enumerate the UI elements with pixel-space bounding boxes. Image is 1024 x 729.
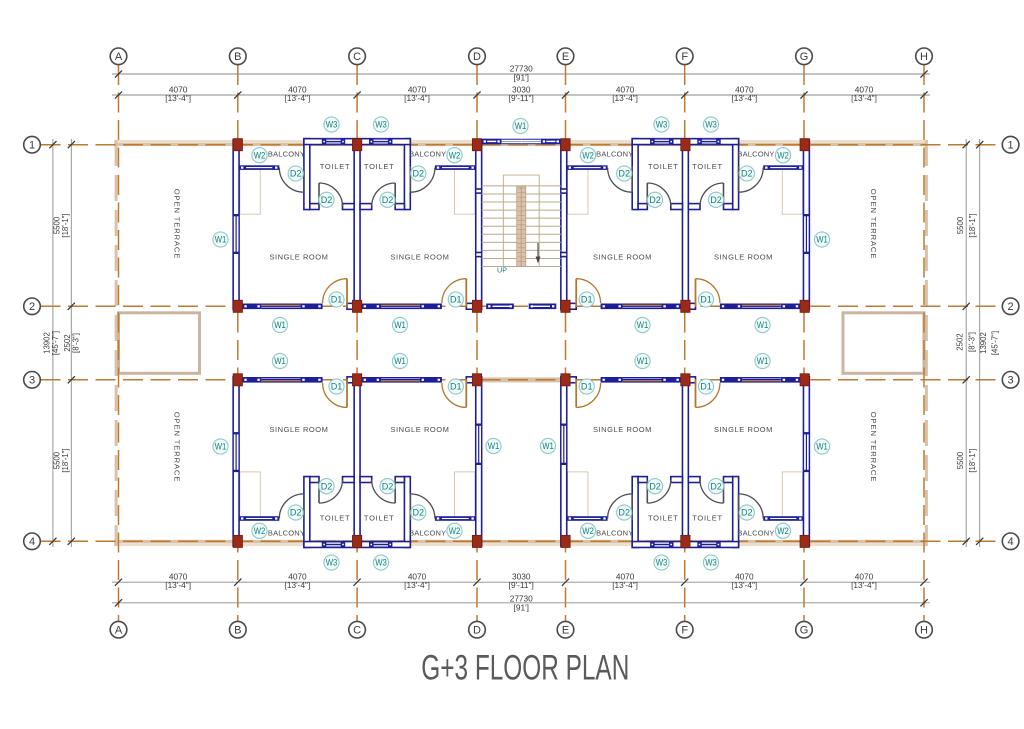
svg-text:D2: D2	[290, 508, 302, 518]
svg-text:[45'-7"]: [45'-7"]	[51, 331, 60, 355]
svg-text:TOILET: TOILET	[320, 514, 351, 523]
svg-text:D1: D1	[331, 295, 343, 305]
svg-text:W1: W1	[757, 320, 769, 330]
svg-text:3: 3	[29, 375, 35, 387]
svg-text:[45'-7"]: [45'-7"]	[991, 331, 1000, 355]
svg-text:D2: D2	[741, 169, 753, 179]
svg-text:W2: W2	[777, 150, 789, 160]
svg-text:H: H	[920, 625, 928, 637]
svg-text:D2: D2	[321, 481, 333, 491]
svg-text:TOILET: TOILET	[320, 162, 351, 171]
svg-text:D1: D1	[700, 382, 712, 392]
svg-text:SINGLE ROOM: SINGLE ROOM	[593, 425, 652, 434]
svg-text:1: 1	[1008, 140, 1014, 152]
svg-text:[13'-4"]: [13'-4"]	[404, 93, 430, 103]
svg-text:D2: D2	[741, 508, 753, 518]
svg-text:W2: W2	[449, 526, 461, 536]
svg-text:2: 2	[29, 301, 35, 313]
svg-text:SINGLE ROOM: SINGLE ROOM	[714, 425, 773, 434]
svg-text:4: 4	[1008, 536, 1014, 548]
svg-text:[18'-1"]: [18'-1"]	[61, 213, 70, 237]
svg-text:A: A	[115, 51, 123, 63]
svg-text:[13'-4"]: [13'-4"]	[165, 93, 191, 103]
svg-text:W1: W1	[274, 356, 286, 366]
svg-text:D1: D1	[581, 295, 593, 305]
svg-text:D2: D2	[649, 195, 661, 205]
svg-text:SINGLE ROOM: SINGLE ROOM	[270, 253, 329, 262]
svg-text:G: G	[800, 51, 809, 63]
svg-text:W1: W1	[215, 235, 227, 245]
svg-text:D2: D2	[382, 481, 394, 491]
svg-text:4: 4	[29, 536, 35, 548]
svg-text:G: G	[800, 625, 809, 637]
svg-text:SINGLE ROOM: SINGLE ROOM	[714, 253, 773, 262]
svg-text:W1: W1	[515, 121, 527, 131]
svg-text:F: F	[681, 51, 688, 63]
svg-text:[91']: [91']	[514, 602, 529, 612]
svg-text:[13'-4"]: [13'-4"]	[731, 580, 757, 590]
svg-text:[13'-4"]: [13'-4"]	[285, 93, 311, 103]
svg-text:OPEN TERRACE: OPEN TERRACE	[869, 189, 878, 260]
svg-text:D: D	[473, 51, 481, 63]
svg-text:D1: D1	[450, 295, 462, 305]
svg-text:3: 3	[1008, 375, 1014, 387]
svg-text:W1: W1	[757, 356, 769, 366]
svg-text:TOILET: TOILET	[692, 514, 723, 523]
svg-text:W1: W1	[816, 442, 828, 452]
svg-text:BALCONY: BALCONY	[409, 529, 446, 538]
svg-text:D2: D2	[710, 481, 722, 491]
svg-text:W2: W2	[582, 526, 594, 536]
svg-text:A: A	[115, 625, 123, 637]
svg-text:C: C	[353, 625, 361, 637]
svg-text:BALCONY: BALCONY	[596, 149, 633, 158]
svg-text:BALCONY: BALCONY	[268, 149, 305, 158]
svg-text:5500: 5500	[956, 451, 965, 469]
svg-text:W1: W1	[816, 235, 828, 245]
svg-text:D2: D2	[382, 195, 394, 205]
svg-text:OPEN TERRACE: OPEN TERRACE	[173, 189, 182, 260]
svg-text:[13'-4"]: [13'-4"]	[612, 580, 638, 590]
svg-text:D1: D1	[331, 382, 343, 392]
svg-text:TOILET: TOILET	[648, 514, 679, 523]
svg-text:D2: D2	[710, 195, 722, 205]
svg-text:1: 1	[29, 140, 35, 152]
svg-text:SINGLE ROOM: SINGLE ROOM	[593, 253, 652, 262]
svg-text:B: B	[234, 625, 241, 637]
svg-text:5500: 5500	[956, 216, 965, 234]
svg-text:TOILET: TOILET	[364, 162, 395, 171]
svg-text:W1: W1	[394, 320, 406, 330]
svg-text:BALCONY: BALCONY	[596, 529, 633, 538]
svg-text:[8'-3"]: [8'-3"]	[968, 332, 977, 352]
svg-text:BALCONY: BALCONY	[268, 529, 305, 538]
svg-text:[13'-4"]: [13'-4"]	[612, 93, 638, 103]
svg-text:D2: D2	[618, 169, 630, 179]
svg-text:D2: D2	[649, 481, 661, 491]
svg-text:UP: UP	[497, 266, 507, 275]
svg-text:W1: W1	[394, 356, 406, 366]
svg-text:BALCONY: BALCONY	[409, 149, 446, 158]
svg-text:D1: D1	[700, 295, 712, 305]
svg-text:[91']: [91']	[514, 73, 529, 83]
svg-text:OPEN TERRACE: OPEN TERRACE	[173, 412, 182, 483]
svg-text:E: E	[562, 51, 569, 63]
svg-text:W2: W2	[449, 150, 461, 160]
svg-text:W3: W3	[705, 120, 717, 130]
svg-text:W1: W1	[215, 442, 227, 452]
svg-text:13902: 13902	[979, 332, 988, 354]
svg-text:H: H	[920, 51, 928, 63]
svg-text:TOILET: TOILET	[692, 162, 723, 171]
svg-text:[13'-4"]: [13'-4"]	[404, 580, 430, 590]
svg-text:C: C	[353, 51, 361, 63]
svg-text:W3: W3	[326, 558, 338, 568]
svg-text:W3: W3	[375, 558, 387, 568]
svg-text:D1: D1	[450, 382, 462, 392]
svg-text:W2: W2	[777, 526, 789, 536]
svg-text:TOILET: TOILET	[648, 162, 679, 171]
svg-text:F: F	[681, 625, 688, 637]
svg-text:[8'-3"]: [8'-3"]	[71, 333, 80, 353]
svg-text:[18'-1"]: [18'-1"]	[61, 448, 70, 472]
svg-text:[13'-4"]: [13'-4"]	[851, 580, 877, 590]
svg-text:W3: W3	[326, 120, 338, 130]
svg-text:W3: W3	[656, 120, 668, 130]
svg-text:SINGLE ROOM: SINGLE ROOM	[270, 425, 329, 434]
svg-text:TOILET: TOILET	[364, 514, 395, 523]
svg-text:W2: W2	[254, 526, 266, 536]
svg-text:W1: W1	[637, 356, 649, 366]
svg-text:D2: D2	[290, 169, 302, 179]
svg-text:OPEN TERRACE: OPEN TERRACE	[869, 412, 878, 483]
svg-text:[13'-4"]: [13'-4"]	[851, 93, 877, 103]
svg-text:SINGLE ROOM: SINGLE ROOM	[391, 253, 450, 262]
svg-text:B: B	[234, 51, 241, 63]
svg-text:D: D	[473, 625, 481, 637]
svg-text:W1: W1	[542, 441, 554, 451]
svg-text:2502: 2502	[956, 333, 965, 350]
svg-text:2: 2	[1008, 301, 1014, 313]
svg-text:[9'-11"]: [9'-11"]	[509, 580, 534, 590]
svg-text:D2: D2	[618, 508, 630, 518]
svg-text:W3: W3	[705, 558, 717, 568]
svg-text:[18'-1"]: [18'-1"]	[968, 448, 977, 472]
svg-text:[13'-4"]: [13'-4"]	[731, 93, 757, 103]
svg-text:W3: W3	[375, 120, 387, 130]
svg-text:W1: W1	[488, 441, 500, 451]
svg-text:D2: D2	[413, 508, 425, 518]
svg-text:W1: W1	[274, 320, 286, 330]
svg-text:D2: D2	[321, 195, 333, 205]
svg-text:G+3 FLOOR PLAN: G+3 FLOOR PLAN	[421, 648, 629, 687]
svg-text:W3: W3	[656, 558, 668, 568]
svg-text:BALCONY: BALCONY	[737, 529, 774, 538]
svg-text:BALCONY: BALCONY	[737, 149, 774, 158]
svg-text:SINGLE ROOM: SINGLE ROOM	[391, 425, 450, 434]
svg-text:D2: D2	[413, 169, 425, 179]
svg-text:W2: W2	[254, 150, 266, 160]
svg-text:[9'-11"]: [9'-11"]	[509, 93, 534, 103]
svg-text:E: E	[562, 625, 569, 637]
svg-text:W1: W1	[637, 320, 649, 330]
svg-text:[18'-1"]: [18'-1"]	[968, 213, 977, 237]
svg-text:W2: W2	[582, 150, 594, 160]
svg-text:[13'-4"]: [13'-4"]	[165, 580, 191, 590]
svg-text:D1: D1	[581, 382, 593, 392]
svg-text:[13'-4"]: [13'-4"]	[285, 580, 311, 590]
